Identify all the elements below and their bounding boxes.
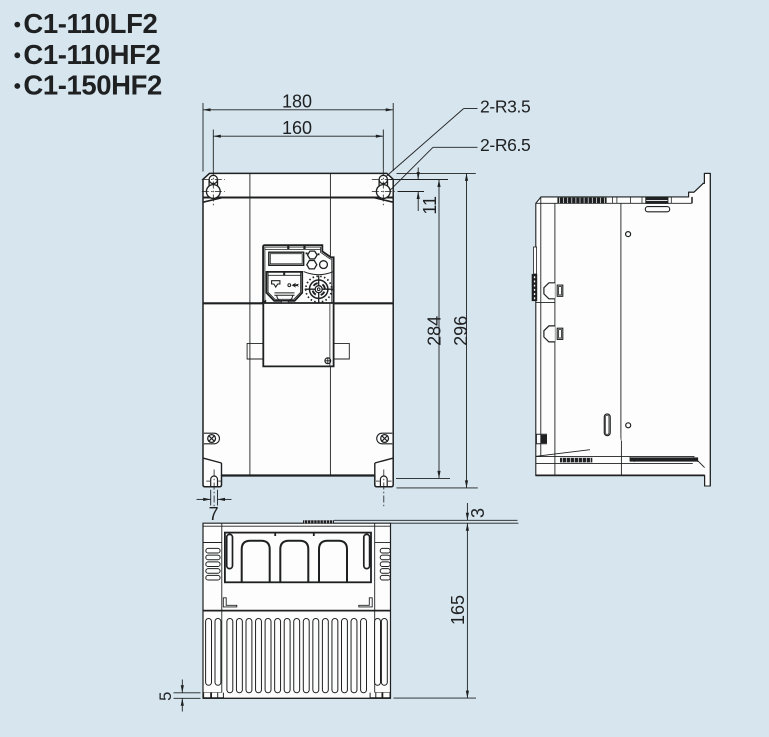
svg-text:C1-150HF2: C1-150HF2 bbox=[23, 70, 162, 101]
svg-text:11: 11 bbox=[420, 196, 440, 215]
svg-text:180: 180 bbox=[282, 92, 312, 112]
svg-text:C1-110HF2: C1-110HF2 bbox=[23, 39, 160, 70]
svg-text:5: 5 bbox=[157, 692, 175, 701]
svg-text:296: 296 bbox=[451, 316, 471, 346]
svg-text:C1-110LF2: C1-110LF2 bbox=[23, 8, 157, 39]
svg-text:160: 160 bbox=[282, 118, 312, 138]
svg-text:3: 3 bbox=[468, 508, 488, 518]
svg-text:284: 284 bbox=[424, 316, 444, 346]
svg-text:2-R6.5: 2-R6.5 bbox=[480, 135, 530, 155]
svg-text:7: 7 bbox=[209, 504, 219, 524]
svg-text:165: 165 bbox=[448, 595, 468, 625]
svg-text:2-R3.5: 2-R3.5 bbox=[480, 96, 530, 116]
